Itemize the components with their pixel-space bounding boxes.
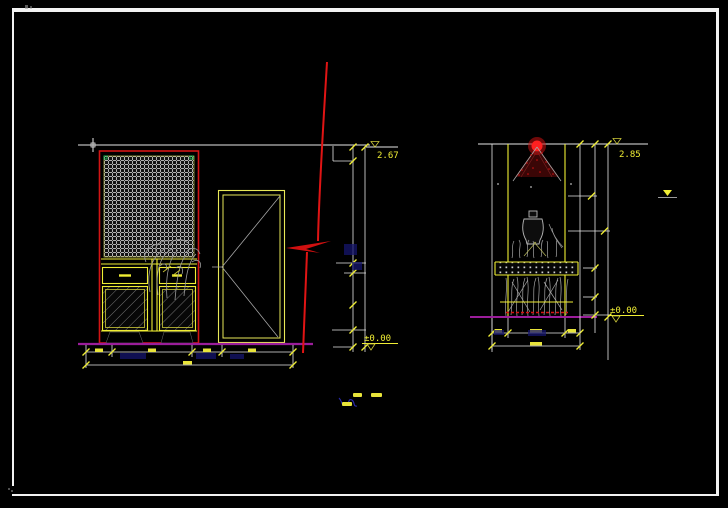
border-speck (25, 5, 28, 9)
level-value: ±0.00 (610, 306, 637, 316)
base-cabinet-left[interactable] (103, 268, 148, 331)
grass-upper[interactable] (512, 240, 557, 258)
title-text-blob (353, 393, 362, 397)
level-value: 2.85 (619, 150, 641, 160)
cabinet-door[interactable] (103, 287, 148, 331)
cabinet-stile[interactable] (152, 259, 157, 331)
aux-level-marker[interactable] (658, 190, 677, 198)
model-space-canvas[interactable]: 2.67 ±0.00 (0, 0, 728, 508)
left-bottom-dimensions[interactable] (83, 345, 297, 369)
level-marker-floor-left[interactable]: ±0.00 (362, 334, 398, 350)
title-text-blob (371, 393, 382, 397)
drawing-title-blobs (339, 393, 382, 406)
level-value: ±0.00 (364, 334, 391, 344)
title-text-blob (342, 402, 352, 406)
grass-lower[interactable] (505, 277, 568, 316)
left-vertical-dimensions[interactable] (332, 144, 369, 353)
level-marker-top-right[interactable]: 2.85 (610, 139, 648, 161)
right-elevation[interactable] (470, 137, 612, 352)
level-marker-floor-right[interactable]: ±0.00 (608, 306, 644, 322)
dim-text-blob (95, 349, 103, 353)
vase[interactable] (523, 211, 544, 244)
door-swing-lines (222, 196, 280, 337)
dim-text-blob (248, 349, 256, 353)
dotted-panel[interactable] (495, 262, 578, 275)
mesh-lattice-panel[interactable] (104, 156, 194, 257)
cabinet-door[interactable] (160, 287, 196, 331)
left-elevation[interactable] (78, 138, 370, 344)
break-line[interactable] (286, 62, 331, 353)
border-speck (30, 6, 32, 9)
dim-text-blob (148, 349, 156, 353)
cabinet-plinth[interactable] (101, 331, 197, 343)
dim-text-blob (530, 342, 542, 346)
door-leaf[interactable] (212, 191, 285, 343)
level-value: 2.67 (377, 151, 399, 161)
dim-text-blob (568, 329, 576, 333)
dim-text-blob (203, 349, 211, 353)
level-marker-top-left[interactable]: 2.67 (366, 142, 399, 162)
crosshair-pickbox-icon (86, 138, 100, 152)
dim-text-blob (183, 361, 192, 365)
right-vertical-dimensions[interactable] (568, 141, 612, 361)
right-bottom-dimensions[interactable] (489, 318, 584, 350)
cad-viewport[interactable]: 2.67 ±0.00 (0, 0, 728, 508)
